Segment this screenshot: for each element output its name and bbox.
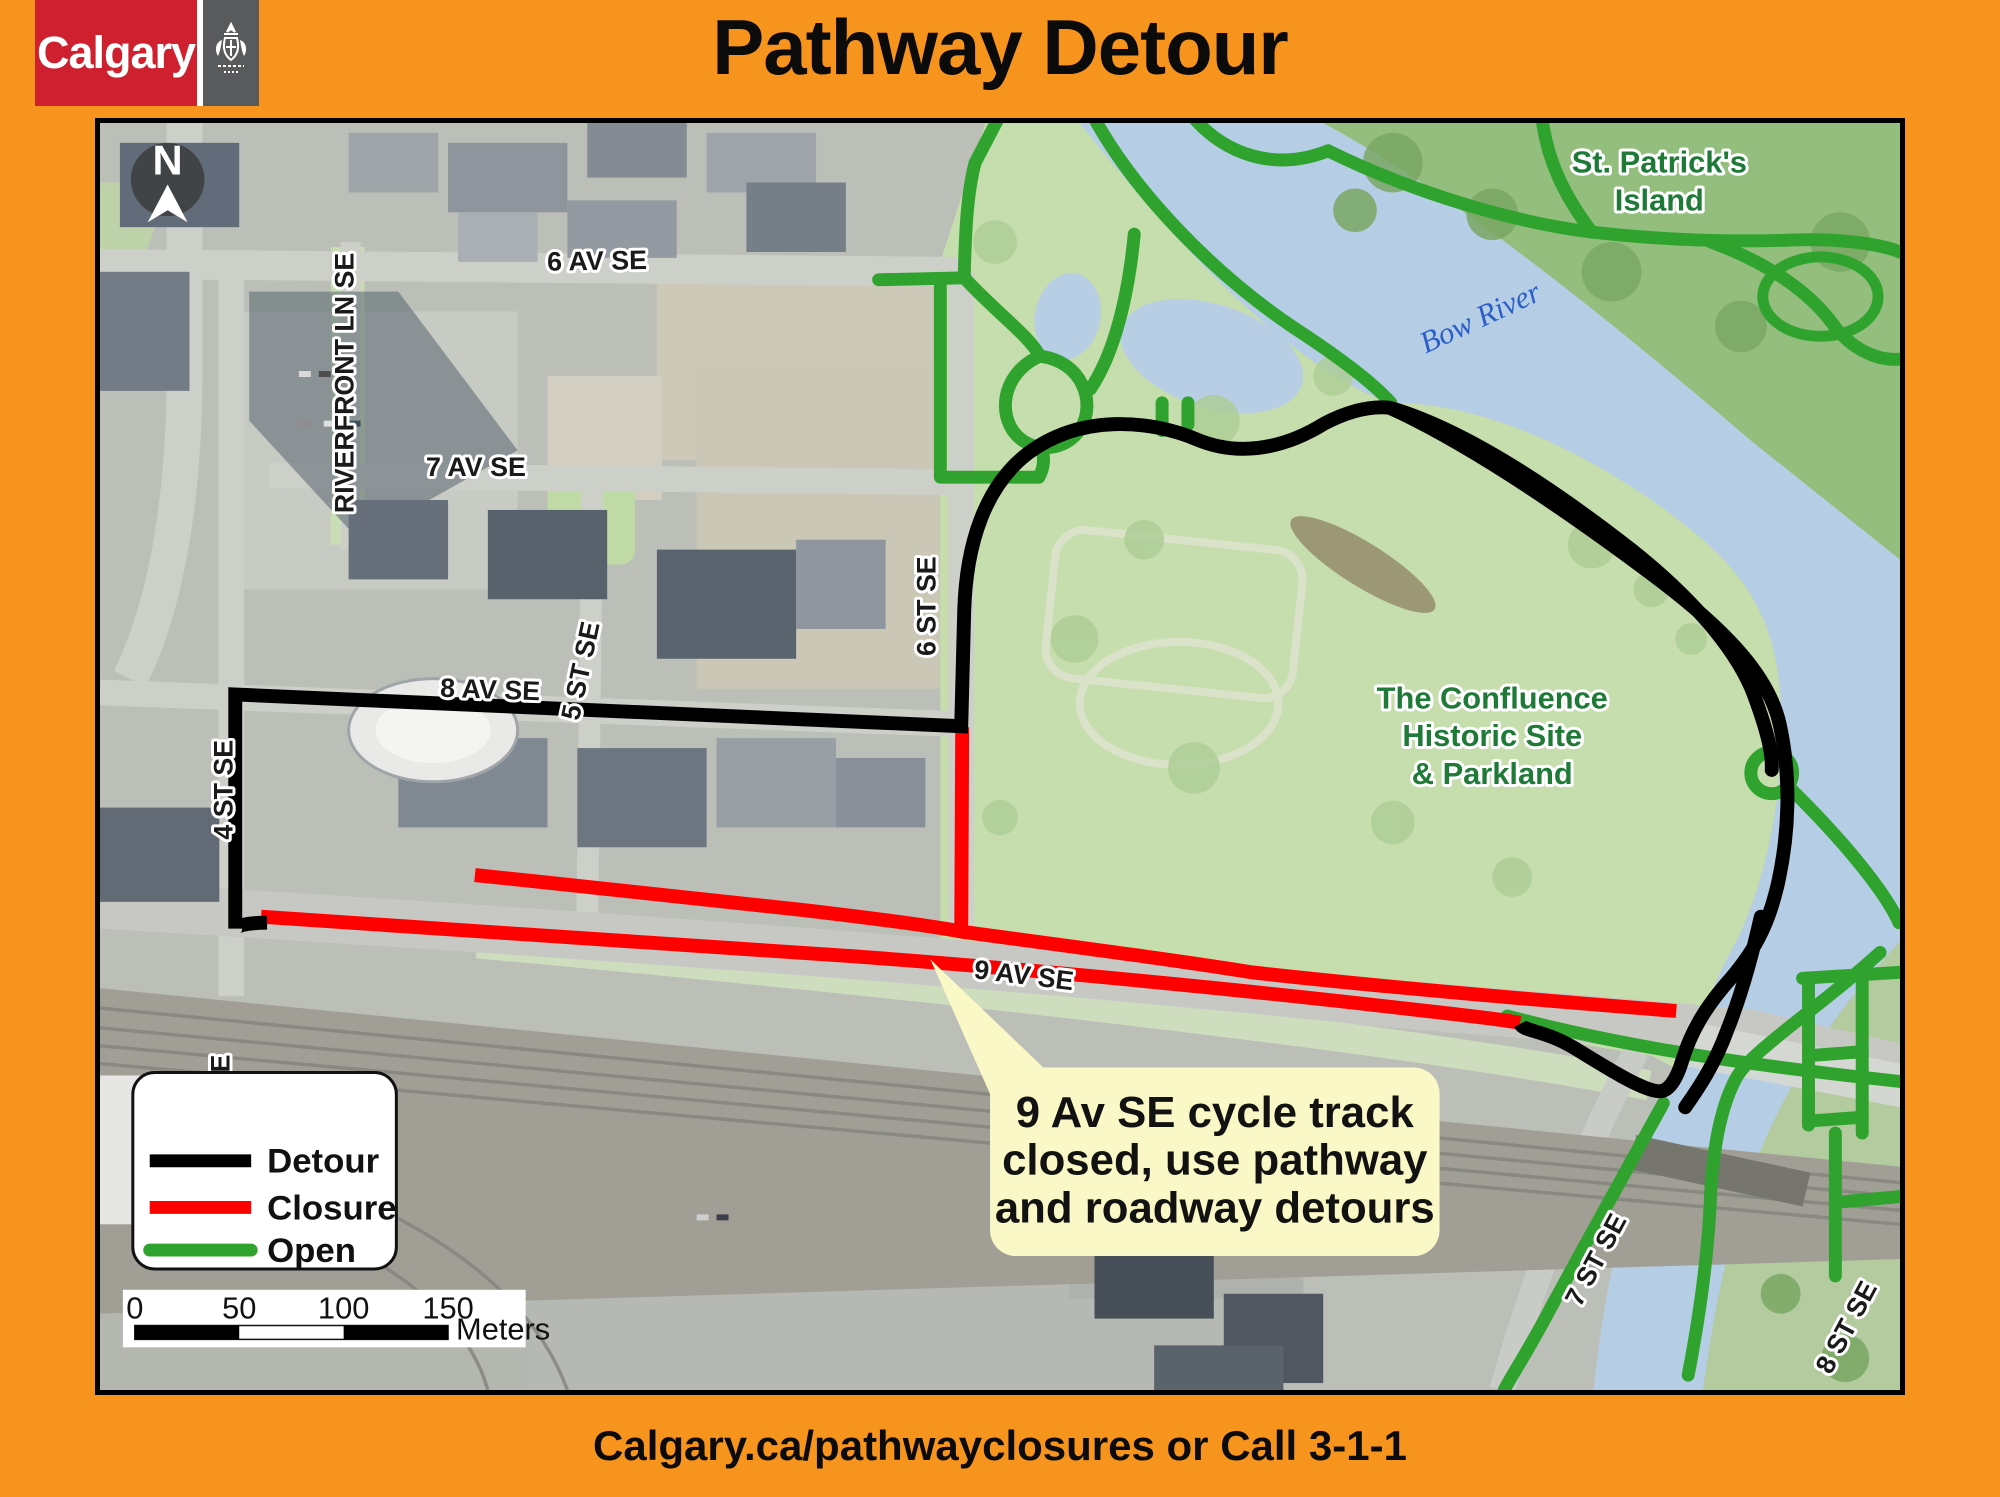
street-label-8-av-se: 8 AV SE [440, 673, 541, 706]
legend-label-closure: Closure [267, 1189, 397, 1227]
st-patricks-island-label-line2: Island [1615, 182, 1704, 217]
north-arrow-label: N [153, 137, 183, 184]
scale-tick-100: 100 [318, 1291, 369, 1326]
confluence-label-line1: The Confluence [1377, 680, 1608, 715]
callout-line1: 9 Av SE cycle track [1016, 1088, 1415, 1137]
street-label-riverfront-ln-se: RIVERFRONT LN SE [330, 253, 360, 513]
st-patricks-island-label-line1: St. Patrick's [1572, 145, 1747, 180]
footer-text: Calgary.ca/pathwayclosures or Call 3-1-1 [593, 1422, 1407, 1470]
scale-unit-label: Meters [456, 1311, 550, 1346]
map-canvas: 6 AV SE 7 AV SE 8 AV SE 9 AV SE RIVERFRO… [100, 123, 1900, 1390]
map: 6 AV SE 7 AV SE 8 AV SE 9 AV SE RIVERFRO… [95, 118, 1905, 1395]
street-label-partial-e: E [205, 1055, 235, 1073]
callout-line2: closed, use pathway [1002, 1136, 1428, 1185]
closure-6st-stub [961, 727, 962, 931]
callout-line3: and roadway detours [995, 1183, 1435, 1232]
confluence-label-line2: Historic Site [1402, 718, 1582, 753]
scale-tick-0: 0 [126, 1291, 143, 1326]
legend: Detour Closure Open [133, 1073, 397, 1270]
street-label-4-st-se: 4 ST SE [208, 740, 238, 840]
street-label-7-av-se: 7 AV SE [426, 452, 526, 482]
scale-bar-seg1 [135, 1326, 239, 1340]
page-title: Pathway Detour [0, 2, 2000, 93]
confluence-label-line3: & Parkland [1412, 756, 1573, 791]
legend-label-open: Open [267, 1232, 356, 1270]
footer: Calgary.ca/pathwayclosures or Call 3-1-1 [0, 1395, 2000, 1497]
scale-tick-50: 50 [222, 1291, 256, 1326]
scale-bar: 0 50 100 150 Meters [123, 1290, 550, 1348]
legend-label-detour: Detour [267, 1143, 379, 1181]
scale-bar-seg2 [344, 1326, 448, 1340]
street-label-6-av-se: 6 AV SE [547, 245, 647, 277]
pathway-detour-poster: Calgary Pathway Det [0, 0, 2000, 1497]
header: Calgary Pathway Det [0, 0, 2000, 118]
street-label-6-st-se: 6 ST SE [911, 556, 941, 656]
